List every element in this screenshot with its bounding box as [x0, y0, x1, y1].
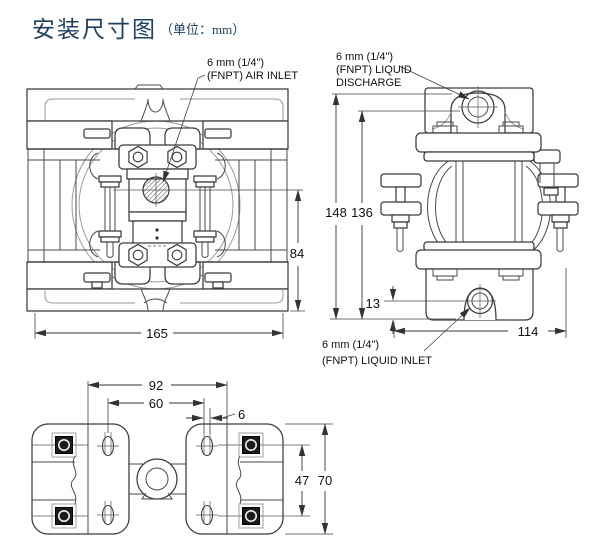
liquid-discharge-label-line3: DISCHARGE — [336, 77, 401, 89]
front-view: 84 165 6 mm (1/4") (FNPT) AIR INLET — [27, 57, 305, 341]
installation-dimension-drawing: 84 165 6 mm (1/4") (FNPT) AIR INLET — [0, 0, 600, 551]
dim-6-label: 6 — [238, 407, 245, 422]
air-inlet-port — [143, 177, 169, 203]
dim-base-row-depth-47: 47 — [295, 445, 309, 516]
base-center-boss — [129, 459, 186, 499]
dim-92-label: 92 — [149, 378, 163, 393]
liquid-discharge-label-line2: (FNPT) LIQUID — [336, 64, 412, 76]
liquid-discharge-label-line1: 6 mm (1/4") — [336, 51, 393, 63]
side-clamps — [381, 150, 578, 252]
hex-bolt — [129, 147, 147, 168]
liquid-inlet-label-line1: 6 mm (1/4") — [322, 339, 379, 351]
base-left-foot-plate — [32, 424, 129, 534]
liquid-inlet-label-line2: (FNPT) LIQUID INLET — [322, 355, 432, 367]
drawing-page: 安装尺寸图（单位：mm） — [0, 0, 600, 551]
hex-bolt — [168, 245, 186, 266]
side-top-manifold — [416, 86, 541, 161]
front-bottom-manifold — [27, 262, 288, 311]
mounting-nut — [52, 504, 76, 528]
dim-84-label: 84 — [290, 246, 304, 261]
air-inlet-label-line2: (FNPT) AIR INLET — [207, 70, 298, 82]
dim-13-label: 13 — [366, 296, 380, 311]
dim-front-width-165: 165 — [35, 313, 283, 341]
hex-bolt — [168, 147, 186, 168]
dim-114-label: 114 — [518, 324, 539, 339]
side-view: 148 136 13 114 6 mm (1/4") (FNPT) LI — [322, 51, 578, 367]
mounting-nut — [239, 504, 263, 528]
air-inlet-label-line1: 6 mm (1/4") — [207, 57, 264, 69]
dim-165-label: 165 — [146, 326, 168, 341]
mounting-nut — [239, 433, 263, 457]
dim-47-label: 47 — [295, 473, 309, 488]
front-top-manifold — [27, 85, 288, 149]
hex-bolt — [129, 245, 147, 266]
side-bottom-manifold — [416, 242, 541, 320]
dim-148-label: 148 — [325, 205, 347, 220]
bottom-view: 92 60 6 47 70 — [32, 378, 333, 534]
dim-136-label: 136 — [351, 205, 373, 220]
side-body — [428, 160, 551, 254]
dim-70-label: 70 — [318, 473, 332, 488]
dim-60-label: 60 — [149, 396, 163, 411]
base-right-foot-plate — [186, 424, 310, 534]
mounting-nut — [52, 433, 76, 457]
front-center-air-valve — [113, 145, 198, 267]
